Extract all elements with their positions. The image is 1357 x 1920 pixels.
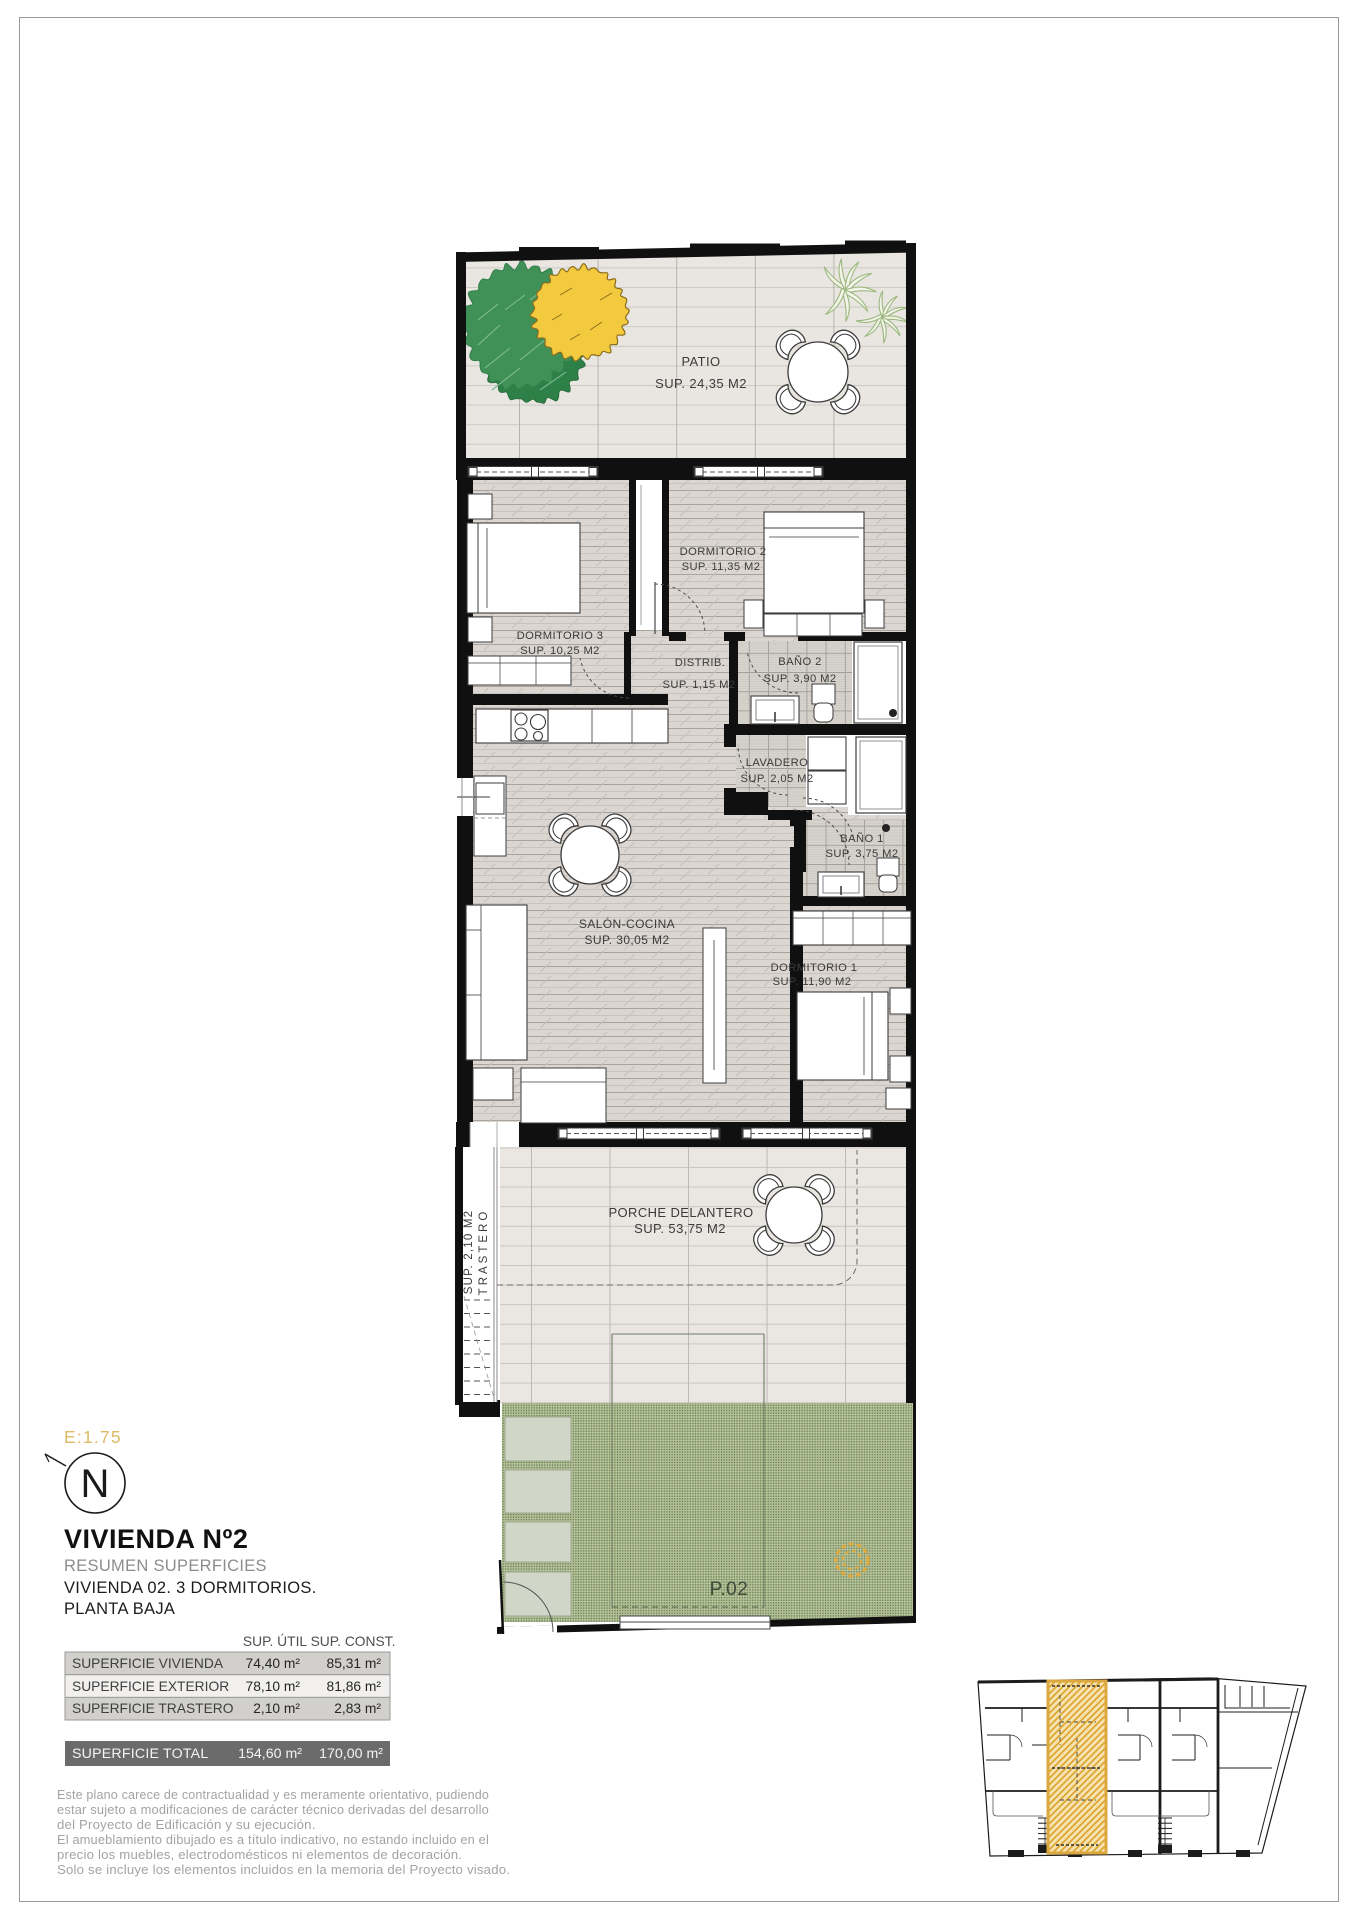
svg-text:2,83 m²: 2,83 m²	[334, 1701, 381, 1716]
svg-text:DORMITORIO 2: DORMITORIO 2	[680, 546, 767, 558]
svg-text:SALÓN-COCINA: SALÓN-COCINA	[579, 916, 675, 931]
svg-text:DORMITORIO 3: DORMITORIO 3	[517, 630, 604, 642]
svg-text:SUP. 3,90 M2: SUP. 3,90 M2	[764, 673, 837, 685]
svg-text:VIVIENDA Nº2: VIVIENDA Nº2	[64, 1524, 248, 1554]
svg-text:78,10 m²: 78,10 m²	[246, 1679, 301, 1694]
svg-text:SUP. 10,25 M2: SUP. 10,25 M2	[520, 645, 600, 657]
svg-text:SUP. 1,15 M2: SUP. 1,15 M2	[663, 679, 736, 691]
svg-text:Solo se incluye los elementos: Solo se incluye los elementos incluidos …	[57, 1862, 510, 1877]
svg-text:SUP. 53,75 M2: SUP. 53,75 M2	[634, 1221, 726, 1236]
svg-text:SUP. 30,05 M2: SUP. 30,05 M2	[584, 933, 669, 947]
svg-text:E:1.75: E:1.75	[64, 1427, 122, 1447]
svg-text:SUP. 24,35 M2: SUP. 24,35 M2	[655, 376, 747, 391]
svg-text:precio los muebles, electrodom: precio los muebles, electrodomésticos ni…	[57, 1847, 462, 1862]
svg-text:81,86 m²: 81,86 m²	[327, 1679, 382, 1694]
svg-text:Este plano carece de contractu: Este plano carece de contractualidad y e…	[57, 1787, 489, 1802]
svg-text:SUPERFICIE VIVIENDA: SUPERFICIE VIVIENDA	[72, 1656, 224, 1671]
svg-text:PLANTA BAJA: PLANTA BAJA	[64, 1600, 175, 1618]
svg-text:DISTRIB.: DISTRIB.	[675, 657, 725, 669]
svg-text:SUPERFICIE EXTERIOR: SUPERFICIE EXTERIOR	[72, 1679, 229, 1694]
svg-text:SUP. 2,05 M2: SUP. 2,05 M2	[741, 773, 814, 785]
svg-text:85,31 m²: 85,31 m²	[327, 1656, 382, 1671]
svg-text:N: N	[81, 1462, 110, 1506]
svg-text:RESUMEN SUPERFICIES: RESUMEN SUPERFICIES	[64, 1557, 267, 1575]
svg-text:LAVADERO: LAVADERO	[746, 757, 808, 769]
svg-text:El amueblamiento dibujado es a: El amueblamiento dibujado es a título in…	[57, 1832, 489, 1847]
svg-text:TRASTERO: TRASTERO	[478, 1209, 490, 1296]
svg-text:PORCHE DELANTERO: PORCHE DELANTERO	[608, 1205, 753, 1220]
svg-text:SUPERFICIE TOTAL: SUPERFICIE TOTAL	[72, 1746, 208, 1762]
svg-text:P.02: P.02	[710, 1579, 749, 1600]
svg-text:PATIO: PATIO	[681, 354, 720, 369]
svg-text:del Proyecto de Edificación y: del Proyecto de Edificación y su ejecuci…	[57, 1817, 316, 1832]
svg-text:BAÑO 1: BAÑO 1	[840, 832, 883, 845]
svg-text:SUPERFICIE TRASTERO: SUPERFICIE TRASTERO	[72, 1701, 234, 1716]
svg-text:SUP. CONST.: SUP. CONST.	[311, 1634, 396, 1649]
svg-text:SUP. 3,75 M2: SUP. 3,75 M2	[826, 848, 899, 860]
svg-text:DORMITORIO 1: DORMITORIO 1	[771, 962, 858, 974]
svg-text:estar sujeto a modificaciones: estar sujeto a modificaciones de carácte…	[57, 1802, 489, 1817]
svg-text:74,40 m²: 74,40 m²	[246, 1656, 301, 1671]
svg-text:2,10 m²: 2,10 m²	[253, 1701, 300, 1716]
svg-text:SUP. ÚTIL: SUP. ÚTIL	[243, 1633, 307, 1649]
svg-text:SUP. 11,35 M2: SUP. 11,35 M2	[682, 561, 761, 573]
svg-text:SUP. 11,90 M2: SUP. 11,90 M2	[773, 976, 852, 988]
svg-text:VIVIENDA 02. 3 DORMITORIOS.: VIVIENDA 02. 3 DORMITORIOS.	[64, 1579, 317, 1597]
svg-text:SUP. 2,10 M2: SUP. 2,10 M2	[463, 1210, 475, 1295]
svg-text:BAÑO 2: BAÑO 2	[778, 655, 821, 668]
svg-text:170,00 m²: 170,00 m²	[319, 1746, 383, 1762]
svg-text:154,60 m²: 154,60 m²	[238, 1746, 302, 1762]
